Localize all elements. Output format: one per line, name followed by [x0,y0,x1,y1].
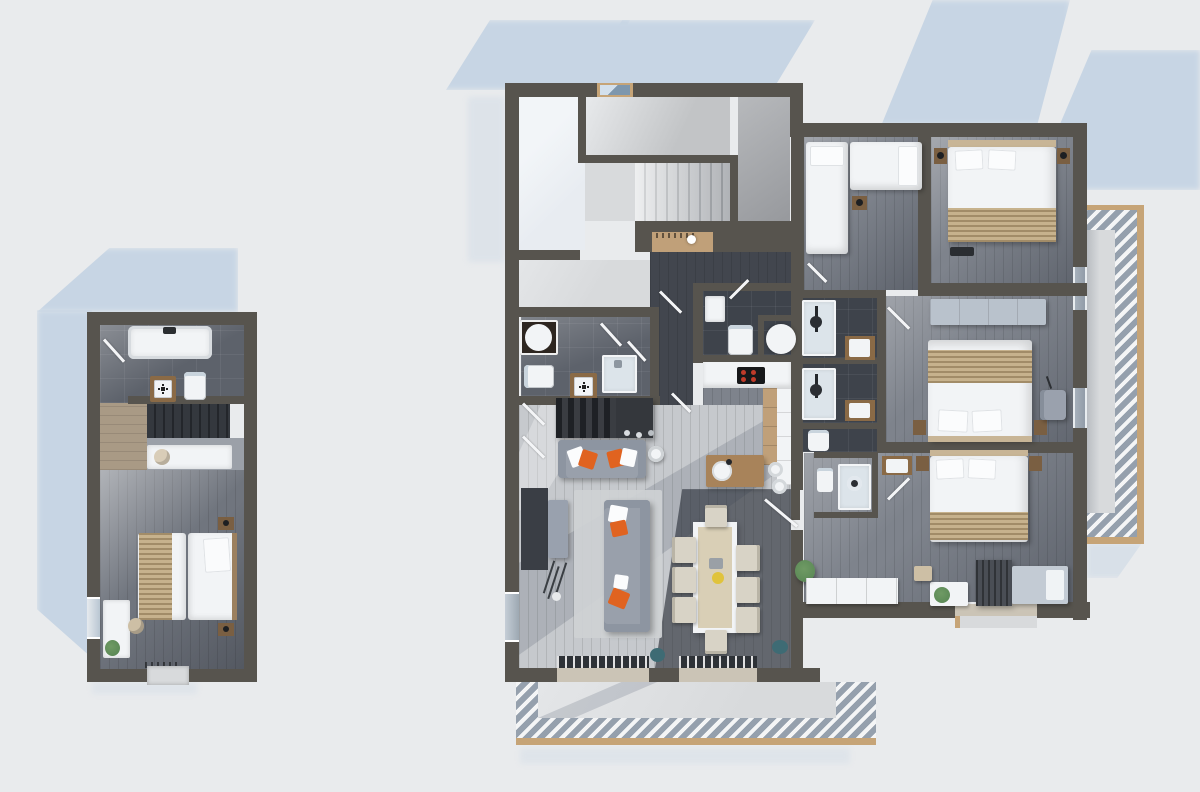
wall [650,307,659,405]
toilet [184,372,206,400]
wall [757,668,820,682]
annex-hall-floor [100,403,147,470]
dining-chair [672,567,696,593]
bench-black [950,247,974,256]
shower-head [851,480,858,487]
window [1073,388,1087,428]
dining-chair [736,577,760,603]
pillow [810,146,844,166]
pillow [987,149,1016,170]
pillow [898,146,918,186]
decor [624,430,630,436]
nightstand [1029,456,1042,471]
lamp [937,152,944,159]
basin-faucet [161,387,165,391]
balcony-frame [1087,537,1144,544]
staircase-shade [635,163,730,221]
lamp [223,520,229,526]
wall [791,137,804,290]
shower [802,300,836,356]
annex-stairs [147,403,230,438]
window [87,597,100,639]
plant [105,640,120,656]
upper-landing-floor [585,97,730,163]
cast-shadow [865,0,1070,125]
wall [512,307,658,317]
vanity-basin [849,339,870,357]
wall [693,355,803,362]
daybench [930,299,1046,325]
bench-cabinets [806,578,898,604]
window [505,592,519,642]
dining-chair [736,545,760,571]
vanity-basin [849,403,870,418]
throw-blanket [928,350,1032,383]
floor-lamp-base [552,592,561,601]
kitchen-cabinet-face [763,388,777,465]
wall [790,123,1087,137]
wall [814,512,878,518]
dining-chair [672,597,696,623]
bathtub-faucet [163,327,176,334]
hearth-mat [521,488,548,570]
bar-stool [772,479,787,494]
wall [1073,137,1087,620]
shower-head [810,384,822,396]
wall [635,232,652,252]
pillow [954,149,983,170]
stair-left-floor [585,163,635,221]
nightstand [913,420,926,435]
entry-step [147,666,189,685]
pillow [935,458,964,479]
desk-chair [154,449,170,465]
door-threshold [679,668,757,682]
shower-drain [614,360,622,368]
stool-teal [650,648,665,662]
basin-faucet [582,385,586,389]
lamp [687,235,696,244]
pillow [967,458,996,479]
wall [87,312,257,325]
throw-blanket [948,208,1056,242]
table-decor-bowl [709,558,723,569]
wall [800,423,877,429]
cast-shadow [37,248,238,312]
lamp [856,199,863,206]
floor-plan-render [0,0,1200,792]
terrace-frame [516,738,876,745]
cast-shadow [37,310,92,658]
wall [693,283,703,363]
throw-blanket [139,533,172,620]
side-table [648,446,664,462]
balcony-frame [1087,205,1137,210]
window-glass [600,85,630,95]
wall [635,221,803,232]
console-top [616,398,653,438]
wall [730,163,738,229]
folding-glass-door [557,656,649,668]
wall [578,97,586,163]
dining-chair [736,607,760,633]
wall [713,232,791,252]
wall [244,312,257,682]
stool [914,566,932,581]
balcony-interior [1087,230,1115,513]
cast-shadow [468,97,505,262]
round-basin [525,324,552,351]
toilet [808,430,829,451]
headboard [232,533,237,620]
pillow [971,409,1002,433]
pillow [203,537,231,573]
wall [512,250,580,260]
nightstand [916,456,929,471]
cast-shadow [1087,543,1142,578]
dining-chair [672,537,696,563]
entry-floor [519,260,650,307]
stool-teal [772,640,788,654]
dining-chair [705,505,727,527]
armchair [1040,390,1066,420]
toilet [524,365,554,388]
table-decor-plate [712,572,724,584]
pillow [937,409,968,433]
nightstand [1034,420,1047,435]
headboard [948,140,1056,147]
wall [505,668,557,682]
throw-blanket [930,512,1028,540]
wall [814,452,878,458]
wall [578,155,738,163]
daybed-cushion [1046,570,1064,600]
wall [633,83,803,97]
dining-chair [705,630,727,654]
chair [128,618,144,634]
wall [791,290,886,298]
island-faucet [726,459,732,465]
plant [934,587,950,603]
wall [918,283,1087,296]
cast-shadow [520,748,850,764]
wall [872,452,878,518]
lamp [1060,152,1067,159]
toilet [817,468,833,492]
void-room-floor [519,97,585,250]
balcony-frame [1137,205,1144,543]
landing-right-floor [738,97,790,221]
shower-head [810,316,822,328]
wall [649,668,679,682]
wall [1037,602,1090,618]
wall [791,530,803,682]
headboard [928,436,1032,442]
wc-cabinet [705,296,725,322]
toilet [728,325,753,355]
folding-glass-door [679,656,757,668]
bar-stool [768,462,783,477]
curtain-wardrobe [976,560,1012,606]
vanity-basin [886,459,908,473]
wall [877,290,886,452]
tv-cabinet [548,500,568,558]
lamp [223,626,229,632]
wall [693,283,803,291]
burner [741,370,746,375]
round-basin [766,324,796,354]
door-threshold [557,668,649,682]
wall [758,315,764,362]
